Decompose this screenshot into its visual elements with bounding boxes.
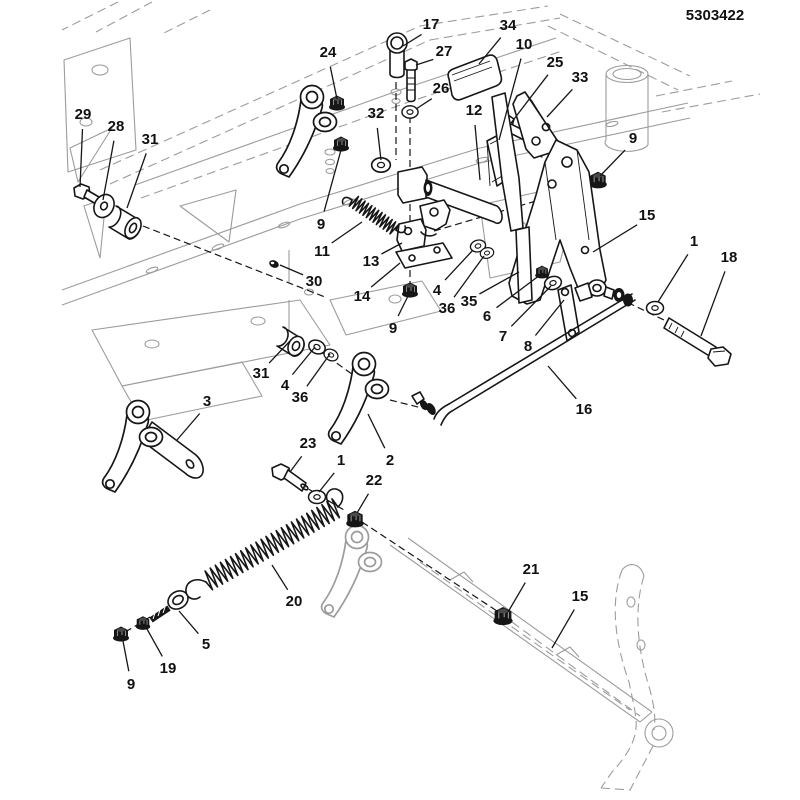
callout-label: 12 [466, 102, 483, 119]
callout-label: 4 [281, 377, 290, 394]
callout-label: 15 [639, 207, 656, 224]
callout-label: 6 [483, 308, 491, 325]
callout-leader-line [398, 294, 409, 316]
part-washer-1-right [647, 302, 664, 315]
callout-label: 31 [142, 131, 159, 148]
part-bushing-31-lower [277, 327, 307, 358]
part-eyebolt-5 [151, 587, 191, 620]
callout-label: 29 [75, 106, 92, 123]
part-nut-9-bottom [113, 627, 129, 642]
callout-leader-line [357, 494, 369, 513]
part-nut-9a [333, 137, 349, 152]
callout-label: 3 [203, 393, 211, 410]
callout-leader-line [701, 271, 725, 336]
callout-label: 13 [363, 253, 380, 270]
parts-diagram-page: 1734102427253326322928311291591181113301… [0, 0, 800, 800]
callout-label: 22 [366, 472, 383, 489]
frame-post [605, 66, 648, 152]
callout-leader-line [593, 225, 637, 252]
callout-label: 33 [572, 69, 589, 86]
part-nut-9-right [589, 172, 607, 189]
callout-leader-line [658, 254, 688, 302]
callout-leader-line [552, 610, 574, 648]
callout-leader-line [508, 583, 525, 612]
part-lever-2 [329, 353, 389, 445]
part-washer-26 [402, 106, 418, 118]
part-lever-3 [103, 401, 204, 493]
callout-leader-line [416, 99, 432, 109]
callout-label: 8 [524, 338, 532, 355]
callout-leader-line [127, 153, 146, 208]
callout-leader-line [416, 59, 433, 65]
callout-leader-line [272, 565, 288, 590]
callout-leader-line [80, 129, 83, 187]
part-bolt-27 [405, 59, 417, 102]
drawing-part-number: 5303422 [686, 7, 744, 24]
callout-leader-line [290, 456, 302, 472]
callout-label: 20 [286, 593, 303, 610]
callout-label: 19 [160, 660, 177, 677]
callout-label: 1 [690, 233, 698, 250]
callout-label: 2 [386, 452, 394, 469]
callout-leader-line [179, 611, 198, 634]
callout-leader-line [177, 414, 200, 441]
callout-leader-line [123, 641, 129, 671]
callout-label: 32 [368, 105, 385, 122]
part-bushing-31-upper [109, 206, 144, 241]
callout-label: 34 [500, 17, 517, 34]
callout-label: 27 [436, 43, 453, 60]
callout-label: 9 [629, 130, 637, 147]
callout-label: 17 [423, 16, 440, 33]
callout-leader-line [307, 354, 330, 386]
callout-label: 25 [547, 54, 564, 71]
callout-label: 31 [253, 365, 270, 382]
callout-leader-line [147, 629, 162, 656]
ghost-lever [322, 526, 382, 618]
part-bolt-18 [664, 318, 731, 366]
part-screw-30 [268, 259, 280, 270]
callout-label: 23 [300, 435, 317, 452]
callout-label: 10 [516, 36, 533, 53]
part-washer-1-lower [309, 491, 326, 504]
callout-leader-line [535, 300, 564, 336]
callout-leader-line [600, 150, 625, 176]
callout-label: 36 [439, 300, 456, 317]
callout-label: 1 [337, 452, 345, 469]
callout-leader-line [280, 265, 303, 275]
callout-leader-line [475, 125, 480, 180]
callout-label: 26 [433, 80, 450, 97]
callout-label: 21 [523, 561, 540, 578]
part-nut-22 [346, 511, 364, 528]
callout-label: 9 [389, 320, 397, 337]
callout-label: 5 [202, 636, 210, 653]
callout-label: 16 [576, 401, 593, 418]
callout-label: 9 [127, 676, 135, 693]
part-bracket-33 [513, 92, 557, 158]
callout-label: 28 [108, 118, 125, 135]
callout-label: 4 [433, 282, 442, 299]
callout-leader-line [547, 89, 572, 117]
part-pedal-34 [448, 55, 501, 100]
ghost-lift-arm [512, 565, 673, 790]
callout-leader-line [330, 67, 337, 99]
callout-label: 14 [354, 288, 371, 305]
part-pin-17 [387, 33, 407, 78]
exploded-parts-diagram: 1734102427253326322928311291591181113301… [0, 0, 800, 800]
part-lift-shaft-12 [398, 167, 502, 223]
callout-label: 11 [314, 243, 330, 260]
callout-label: 9 [317, 216, 325, 233]
callout-leader-line [368, 414, 385, 448]
part-spring-20 [186, 489, 343, 599]
callout-label: 35 [461, 293, 478, 310]
callout-leader-line [332, 222, 362, 243]
callout-label: 24 [320, 44, 337, 61]
callout-leader-line [377, 128, 381, 160]
callout-label: 36 [292, 389, 309, 406]
callout-leader-line [454, 256, 484, 297]
callout-label: 30 [306, 273, 323, 290]
callout-leader-line [548, 366, 576, 399]
callout-label: 15 [572, 588, 589, 605]
callout-label: 18 [721, 249, 738, 266]
callout-label: 7 [499, 328, 507, 345]
callout-leader-line [103, 141, 114, 200]
part-bolt-23 [272, 464, 309, 491]
